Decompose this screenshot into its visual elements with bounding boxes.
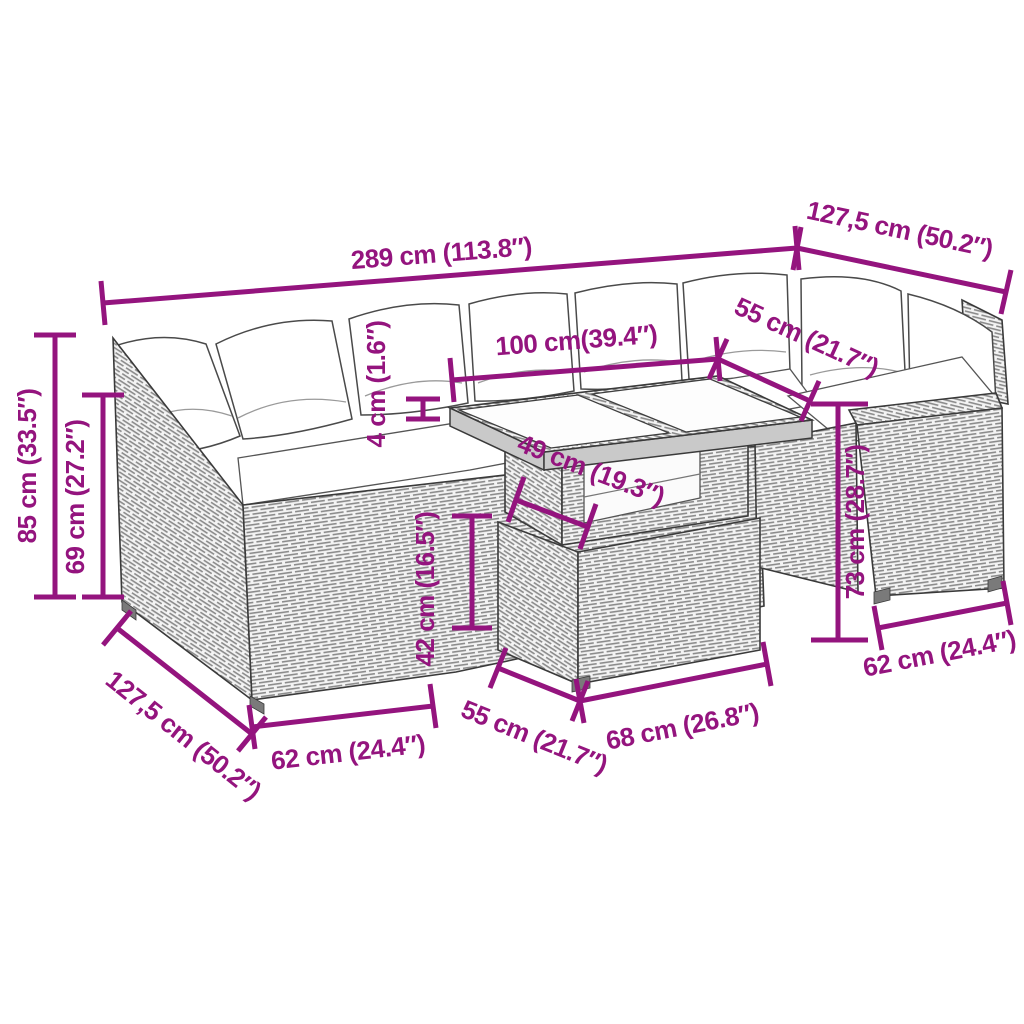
diagram-canvas: 289 cm (113.8″) 127,5 cm (50.2″) 85 cm (… [0,0,1024,1024]
table [450,376,812,692]
armrest-front [857,408,1004,596]
dimension-table-base-height-label: 42 cm (16.5″) [410,512,440,667]
dimension-armrest-height-label: 73 cm (28.7″) [840,445,870,600]
dimension-total-height-label: 85 cm (33.5″) [12,389,42,544]
dimension-frame-height-label: 69 cm (27.2″) [60,420,90,575]
product-dimension-diagram: 289 cm (113.8″) 127,5 cm (50.2″) 85 cm (… [0,0,1024,1024]
dimension-tabletop-thickness-label: 4 cm (1.6″) [361,321,391,448]
